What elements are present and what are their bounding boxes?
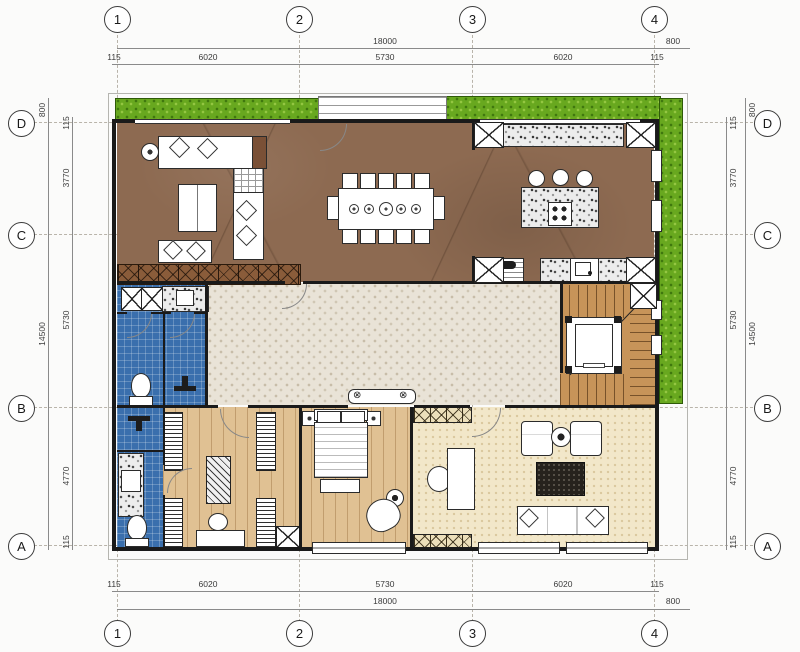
elevator-post	[565, 316, 572, 323]
bed	[314, 422, 368, 478]
armchair	[521, 421, 553, 456]
bar-stool	[528, 170, 545, 187]
armchair	[570, 421, 602, 456]
plate	[349, 204, 359, 214]
plate	[411, 204, 421, 214]
wall-bath-corridor	[205, 283, 208, 405]
floor-plan-canvas: ⊗ ⊗	[0, 0, 800, 652]
elevator-door	[583, 363, 605, 368]
crossed-circle-icon: ⊗	[353, 391, 361, 401]
dim-right-seg: 115	[729, 535, 738, 549]
vanity-sink	[176, 290, 194, 306]
window-bedroom	[312, 542, 406, 554]
grid-label: D	[763, 116, 772, 131]
wall-band-left	[117, 281, 285, 284]
closet-rail	[256, 412, 276, 471]
wall-dressing-bedroom	[299, 407, 302, 548]
dim-top-total: 18000	[373, 37, 397, 46]
window-family-2	[566, 542, 648, 554]
dim-bottom-total: 18000	[373, 597, 397, 606]
dim-right-seg: 3770	[729, 169, 738, 188]
bath2-divider-wall	[117, 450, 163, 452]
dim-top-overhang: 800	[666, 37, 680, 46]
dim-right-seg: 115	[729, 116, 738, 130]
window-family-1	[478, 542, 560, 554]
grid-label: 4	[651, 626, 658, 641]
bed-bench	[320, 479, 360, 493]
wall-mid-2	[248, 405, 348, 408]
planter-right	[659, 98, 683, 404]
window-right	[651, 335, 662, 355]
grid-bubble-row-Ab: A	[754, 533, 781, 560]
grid-bubble-row-C: C	[8, 222, 35, 249]
grid-label: A	[17, 539, 26, 554]
terrace-edge	[318, 96, 447, 121]
grid-bubble-row-Db: D	[754, 110, 781, 137]
bath-closet	[121, 287, 143, 311]
dim-bottom-seg: 6020	[554, 580, 573, 589]
shower2-symbol-stem	[136, 421, 142, 431]
kitchen-counter-top	[498, 124, 624, 147]
column	[630, 283, 657, 309]
centerpiece	[379, 202, 393, 216]
grid-bubble-row-A: A	[8, 533, 35, 560]
grid-label: C	[763, 228, 772, 243]
wall-bath-c	[194, 312, 207, 314]
window-top-kitchen	[480, 119, 640, 124]
wall-bath2-a	[163, 407, 165, 465]
wall-exterior-left	[112, 119, 116, 551]
dim-top-seg: 115	[107, 53, 121, 62]
dim-bottom-seg: 115	[107, 580, 121, 589]
grid-label: B	[763, 401, 772, 416]
grid-label: 2	[296, 12, 303, 27]
corridor-floor	[207, 283, 560, 405]
family-round-table	[551, 427, 571, 447]
coffee-table	[178, 184, 217, 232]
dim-right-overhang: 800	[748, 103, 757, 117]
dressing-desk	[196, 530, 245, 547]
wall-wc-shower	[163, 312, 165, 407]
dim-right-seg: 4770	[729, 467, 738, 486]
bath-closet	[141, 287, 163, 311]
bar-stool	[552, 169, 569, 186]
wall-mid-3	[414, 405, 470, 408]
wall-bath-a	[117, 312, 127, 314]
dim-left-seg: 3770	[62, 169, 71, 188]
shower-symbol-stem	[182, 376, 188, 386]
crossed-circle-icon: ⊗	[399, 391, 407, 401]
closet-rail	[256, 498, 276, 548]
cooktop	[548, 202, 572, 226]
stair-run-bottom	[560, 374, 630, 405]
window-right	[651, 200, 662, 232]
shower-symbol	[174, 386, 196, 391]
dressing-island	[206, 456, 231, 504]
nightstand	[366, 411, 381, 426]
grid-label: A	[763, 539, 772, 554]
vanity2-sink	[121, 470, 141, 492]
window-top-living	[135, 119, 290, 124]
dim-top-seg: 6020	[554, 53, 573, 62]
toilet2-tank	[125, 538, 149, 547]
grid-label: 1	[114, 626, 121, 641]
dim-left-seg: 5730	[62, 311, 71, 330]
dim-bottom-seg: 115	[650, 580, 664, 589]
elevator-post	[565, 366, 572, 373]
elevator-post	[614, 316, 621, 323]
grid-label: 1	[114, 12, 121, 27]
dim-line-bottom-segments	[112, 591, 659, 592]
wall-bedroom-family	[410, 407, 413, 548]
grid-bubble-col-4b: 4	[641, 620, 668, 647]
closet-rail	[164, 498, 183, 548]
grid-bubble-col-2: 2	[286, 6, 313, 33]
wall-bath2-b	[163, 495, 165, 548]
dim-line-left-segments	[72, 117, 73, 550]
dim-left-seg: 115	[62, 116, 71, 130]
grid-label: C	[17, 228, 26, 243]
dim-left-overhang: 800	[38, 103, 47, 117]
grid-bubble-col-2b: 2	[286, 620, 313, 647]
wall-bath-b	[151, 312, 171, 314]
dim-bottom-overhang: 800	[666, 597, 680, 606]
grid-bubble-col-1: 1	[104, 6, 131, 33]
grid-bubble-col-3b: 3	[459, 620, 486, 647]
desk	[447, 448, 475, 510]
grid-label: 4	[651, 12, 658, 27]
plate	[396, 204, 406, 214]
column	[626, 257, 656, 283]
dim-left-seg: 4770	[62, 467, 71, 486]
wall-mid-4	[505, 405, 655, 408]
family-closet-band-top	[413, 407, 472, 423]
stair-run-top	[560, 285, 630, 318]
grid-label: 2	[296, 626, 303, 641]
grid-label: D	[17, 116, 26, 131]
dim-left-seg: 115	[62, 535, 71, 549]
dim-left-total: 14500	[38, 322, 47, 346]
side-table-round	[141, 143, 159, 161]
dim-right-seg: 5730	[729, 311, 738, 330]
area-rug	[536, 462, 585, 496]
dim-bottom-seg: 5730	[376, 580, 395, 589]
corner-closet	[276, 526, 300, 548]
closet-rail	[164, 412, 183, 471]
column	[474, 257, 504, 283]
grid-bubble-row-B: B	[8, 395, 35, 422]
dim-line-left-total	[48, 98, 49, 550]
bar-stool	[576, 170, 593, 187]
grid-bubble-col-4: 4	[641, 6, 668, 33]
toilet-bowl	[131, 373, 151, 398]
wall-mid-1	[117, 405, 218, 408]
window-right	[651, 150, 662, 182]
grid-bubble-row-Bb: B	[754, 395, 781, 422]
faucet	[588, 271, 592, 275]
shelf-unit	[233, 168, 264, 194]
dim-top-seg: 115	[650, 53, 664, 62]
grid-bubble-col-1b: 1	[104, 620, 131, 647]
grid-bubble-row-D: D	[8, 110, 35, 137]
grid-label: 3	[469, 626, 476, 641]
grid-label: B	[17, 401, 26, 416]
elevator-car	[575, 324, 613, 367]
grid-bubble-row-Cb: C	[754, 222, 781, 249]
dim-line-top-segments	[112, 64, 659, 65]
dim-line-bottom-total	[117, 609, 690, 610]
dim-top-seg: 6020	[199, 53, 218, 62]
column	[626, 122, 656, 148]
elevator-post	[614, 366, 621, 373]
dressing-stool	[208, 513, 228, 531]
toilet2-bowl	[127, 515, 147, 540]
sofa-armrest	[252, 136, 267, 169]
plate	[364, 204, 374, 214]
dim-bottom-seg: 6020	[199, 580, 218, 589]
grid-label: 3	[469, 12, 476, 27]
dim-line-top-total	[117, 48, 690, 49]
grid-bubble-col-3: 3	[459, 6, 486, 33]
dim-right-total: 14500	[748, 322, 757, 346]
column	[474, 122, 504, 148]
wall-stair	[560, 283, 563, 373]
dim-top-seg: 5730	[376, 53, 395, 62]
